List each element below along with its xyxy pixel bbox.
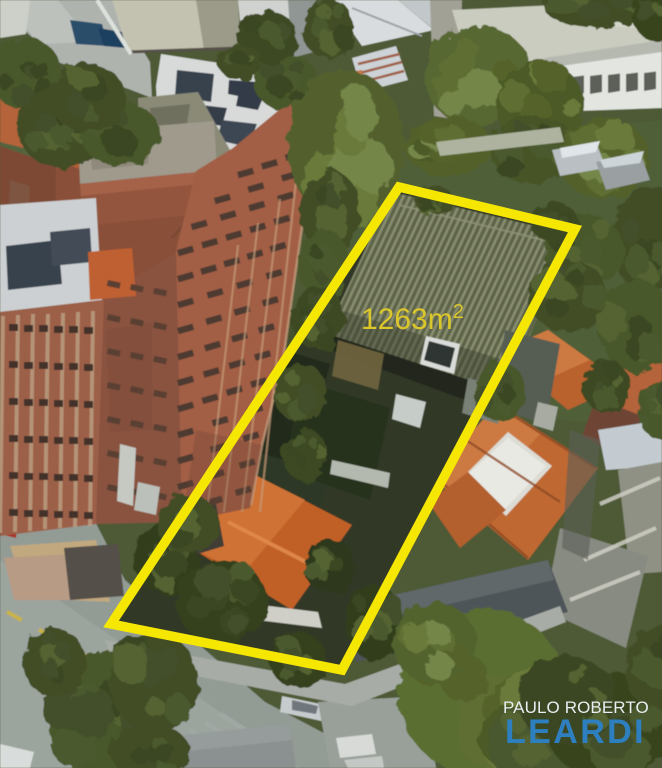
svg-text:LEARDI: LEARDI: [505, 713, 646, 751]
svg-text:1263m2: 1263m2: [361, 301, 464, 336]
